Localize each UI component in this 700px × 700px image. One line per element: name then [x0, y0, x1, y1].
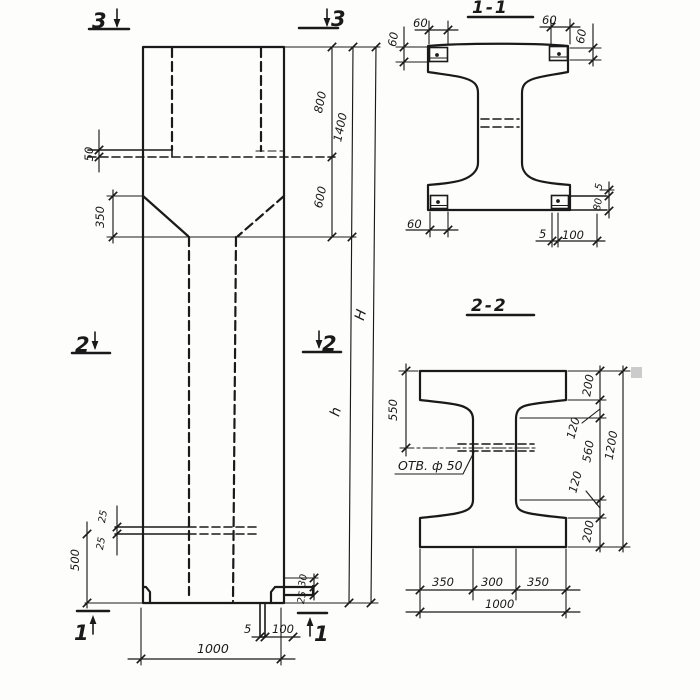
dim-800: 800	[311, 90, 329, 114]
dim-h: h	[327, 406, 345, 419]
dim-60-tr-v: 60	[573, 28, 589, 45]
dim-350-left: 350	[432, 575, 454, 589]
dim-200-bottom: 200	[579, 519, 597, 543]
dim-1200: 1200	[602, 430, 621, 461]
section-mark-3-left: 3	[89, 9, 129, 33]
dim-1400: 1400	[330, 111, 350, 143]
collar-hidden-lines	[172, 48, 261, 151]
mark-3-right-label: 3	[331, 7, 346, 31]
dim-5-br: 5	[539, 227, 546, 241]
section-2-2-view: 2-2 ОТВ. ф 50 550 200 120 560 120 200 1	[386, 296, 642, 618]
dim-300: 300	[481, 575, 503, 589]
dim-120-top: 120	[564, 416, 583, 441]
dim-350-right: 350	[527, 575, 549, 589]
section-mark-1-left: 1	[74, 611, 109, 645]
dim-500: 500	[68, 549, 82, 571]
drawing-sheet: 50 350 800 600 1400 h H 25 25 500 30 25 …	[0, 0, 700, 700]
section-1-1-hole-hidden	[481, 119, 519, 127]
section-2-2-title: 2-2	[471, 296, 508, 316]
hole-callout: ОТВ. ф 50	[395, 452, 474, 474]
shaft-hidden-lines	[189, 237, 236, 601]
elevation-view: 50 350 800 600 1400 h H 25 25 500 30 25 …	[68, 7, 380, 665]
section-mark-3-right: 3	[299, 7, 346, 31]
dim-50: 50	[82, 147, 96, 162]
dim-550: 550	[386, 399, 400, 421]
dim-60-tl-h: 60	[413, 16, 428, 30]
section-1-1-view: 1-1 60 60 60 60 60 5 100 5 80	[385, 0, 614, 247]
taper-hidden-right	[238, 196, 284, 236]
dim-600: 600	[311, 185, 329, 209]
dim-30-foot: 30	[297, 573, 310, 587]
dim-H: H	[352, 307, 370, 322]
dim-5-foot: 5	[244, 622, 251, 636]
mark-2-right-label: 2	[322, 332, 337, 356]
foot-groove	[260, 603, 265, 637]
hole-label: ОТВ. ф 50	[398, 458, 463, 473]
dim-25-bottom: 25	[95, 536, 108, 550]
lifting-hole-lines	[115, 527, 188, 534]
section-mark-2-left: 2	[72, 332, 110, 357]
dim-100-br: 100	[562, 228, 584, 242]
section-1-1-title: 1-1	[472, 0, 509, 18]
dim-350: 350	[93, 206, 107, 228]
column-drawing: 50 350 800 600 1400 h H 25 25 500 30 25 …	[0, 0, 700, 700]
dim-120-bottom: 120	[566, 470, 585, 495]
dim-1000-elevation: 1000	[197, 641, 229, 656]
dim-25-foot: 25	[296, 590, 309, 604]
dim-200-top: 200	[579, 373, 597, 397]
dim-100-foot: 100	[272, 622, 294, 636]
dim-1000-section: 1000	[485, 597, 514, 611]
dim-5-br-v: 5	[594, 182, 606, 190]
section-mark-2-right: 2	[303, 331, 341, 356]
scan-artifact	[631, 367, 642, 378]
section-1-1-dimension-lines	[400, 23, 613, 245]
dim-80-br-v: 80	[592, 197, 605, 211]
column-outline	[143, 47, 284, 603]
taper-left	[143, 196, 188, 236]
dim-60-tr-h: 60	[542, 13, 557, 27]
dim-560: 560	[579, 439, 597, 463]
dim-60-bl: 60	[407, 217, 422, 231]
dim-60-tl-v: 60	[385, 31, 401, 48]
section-mark-1-right: 1	[298, 613, 329, 646]
lifting-hole-hidden	[188, 527, 256, 534]
mark-1-right-label: 1	[314, 622, 329, 646]
dim-25-top: 25	[97, 509, 110, 523]
mark-1-left-label: 1	[74, 621, 89, 645]
